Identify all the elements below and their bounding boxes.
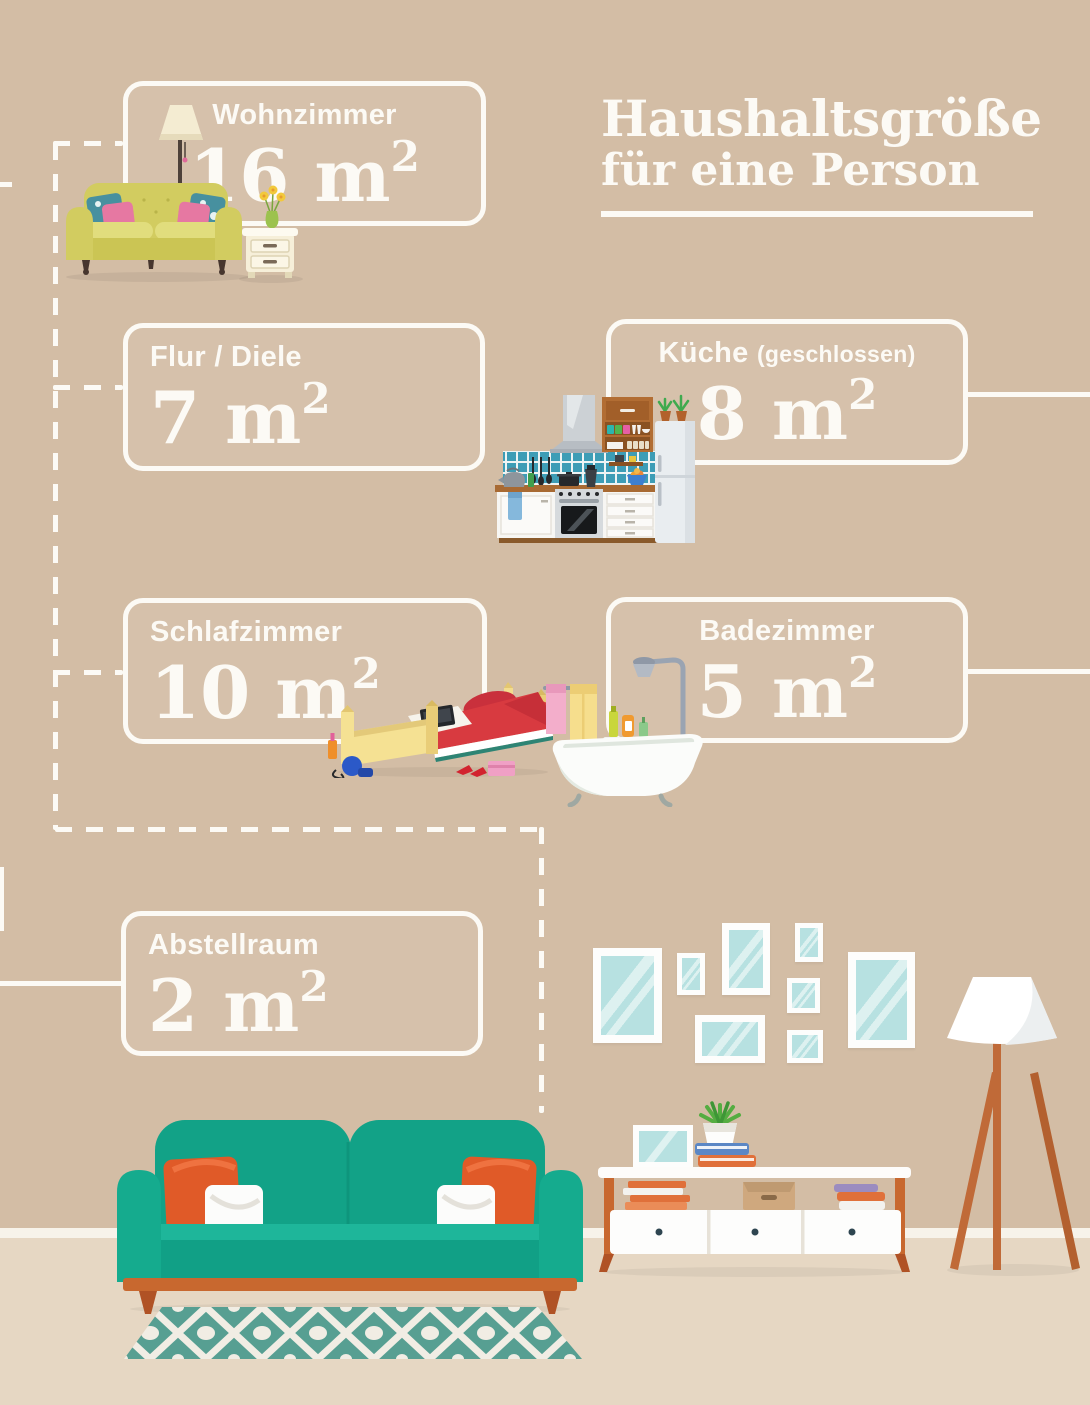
frame-glass	[856, 960, 907, 1040]
cooking-pot-icon	[557, 472, 581, 486]
schlafzimmer-illustration	[308, 682, 556, 783]
shelf-books-left	[623, 1181, 690, 1210]
fridge-icon	[655, 421, 695, 543]
picture-frame-icon	[787, 1030, 823, 1063]
room-area-value: 7 m2	[150, 378, 480, 454]
title-line-1: Haushaltsgröße	[601, 92, 1041, 146]
infographic-canvas: Haushaltsgröße für eine Person Wohnzimme…	[0, 0, 1090, 1405]
floor-lamp-icon	[159, 105, 203, 190]
solid-connector-badezimmer-right	[966, 669, 1090, 674]
sideboard-illustration	[598, 1095, 913, 1284]
edge-line-stub-left	[0, 182, 12, 187]
frame-glass	[729, 930, 763, 988]
dashed-connector-stub-schlafzimmer	[53, 670, 123, 675]
room-label: Schlafzimmer	[150, 616, 482, 649]
page-title: Haushaltsgröße für eine Person	[601, 92, 1041, 217]
stove-icon	[555, 489, 603, 538]
frame-glass	[702, 1022, 758, 1056]
picture-frame-icon	[787, 978, 820, 1013]
edge-line-vertical-left	[0, 867, 4, 931]
solid-connector-abstellraum	[0, 981, 121, 986]
picture-frame-icon	[848, 952, 915, 1048]
room-label: Küche (geschlossen)	[611, 337, 963, 370]
lamp-legs	[950, 1038, 1080, 1270]
room-label-qualifier: (geschlossen)	[757, 341, 916, 367]
flower-vase-icon	[260, 186, 286, 229]
square-exponent: 2	[391, 132, 420, 181]
solid-connector-kueche-right	[966, 392, 1090, 397]
kueche-illustration	[495, 385, 710, 552]
frame-glass	[601, 956, 654, 1035]
square-exponent: 2	[299, 962, 328, 1011]
dashed-connector-horizontal	[55, 827, 543, 832]
storage-box-icon	[743, 1182, 795, 1210]
square-exponent: 2	[848, 370, 877, 419]
picture-frame-icon	[795, 923, 823, 962]
fridge-plants-icon	[659, 396, 688, 421]
room-label: Abstellraum	[148, 929, 478, 962]
bathtub-icon	[553, 734, 703, 805]
pink-box-icon	[488, 761, 515, 776]
rug-illustration	[122, 1307, 584, 1366]
frame-glass	[682, 958, 700, 990]
shelf-books-right	[834, 1184, 885, 1210]
frame-glass	[792, 1035, 818, 1058]
dashed-connector-stub-flur	[53, 385, 123, 390]
frame-glass	[800, 928, 818, 957]
frame-glass	[792, 983, 815, 1008]
green-bottle-icon	[528, 473, 534, 487]
nightstand-icon	[242, 186, 298, 279]
potted-plant-icon	[701, 1103, 739, 1147]
tripod-lamp-illustration	[935, 972, 1090, 1283]
picture-frame-icon	[695, 1015, 765, 1063]
square-exponent: 2	[848, 648, 877, 697]
square-exponent: 2	[301, 374, 330, 423]
spray-bottle-icon	[328, 733, 337, 759]
upper-cabinet-icon	[602, 397, 653, 452]
picture-frame-icon	[722, 923, 770, 995]
room-card-abstellraum: Abstellraum 2 m2	[121, 911, 483, 1056]
room-label: Badezimmer	[611, 615, 963, 648]
tabletop-frame-icon	[633, 1125, 693, 1168]
room-label: Flur / Diele	[150, 341, 480, 374]
room-card-flur: Flur / Diele 7 m2	[123, 323, 485, 471]
dashed-connector-vertical-right	[539, 827, 544, 1113]
picture-frame-icon	[593, 948, 662, 1043]
lower-cabinets-icon	[497, 489, 655, 538]
olive-sofa-icon	[66, 183, 242, 275]
title-line-2: für eine Person	[601, 146, 1041, 195]
lamp-shade-icon	[947, 977, 1057, 1045]
picture-frame-icon	[677, 953, 705, 995]
badezimmer-illustration	[543, 645, 715, 812]
wohnzimmer-illustration	[58, 100, 308, 300]
sideboard-drawers	[610, 1210, 901, 1254]
towel-rail-icon	[543, 684, 597, 741]
range-hood-icon	[550, 395, 608, 453]
teal-sofa-illustration	[115, 1112, 585, 1322]
stacked-books-icon	[695, 1143, 756, 1167]
room-area-value: 2 m2	[148, 966, 478, 1042]
title-underline	[601, 211, 1033, 217]
